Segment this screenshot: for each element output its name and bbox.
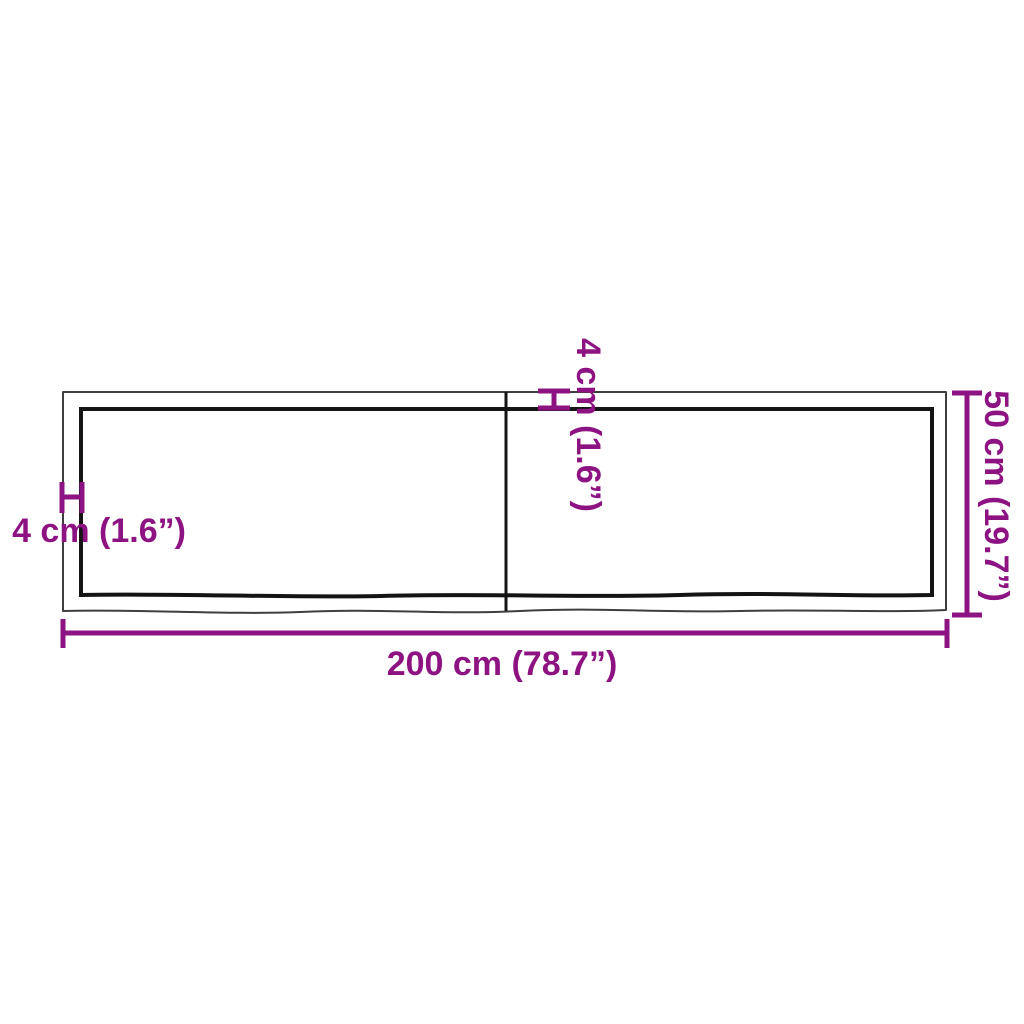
- dimension-diagram: 4 cm (1.6”) 4 cm (1.6”) 50 cm (19.7”) 20…: [0, 0, 1024, 1024]
- thickness-marker-top: [538, 391, 570, 408]
- length-dimension-line: [63, 619, 947, 648]
- thickness-label-left: 4 cm (1.6”): [12, 514, 186, 548]
- length-label: 200 cm (78.7”): [387, 647, 618, 681]
- depth-label: 50 cm (19.7”): [979, 390, 1013, 602]
- thickness-label-top: 4 cm (1.6”): [571, 338, 605, 512]
